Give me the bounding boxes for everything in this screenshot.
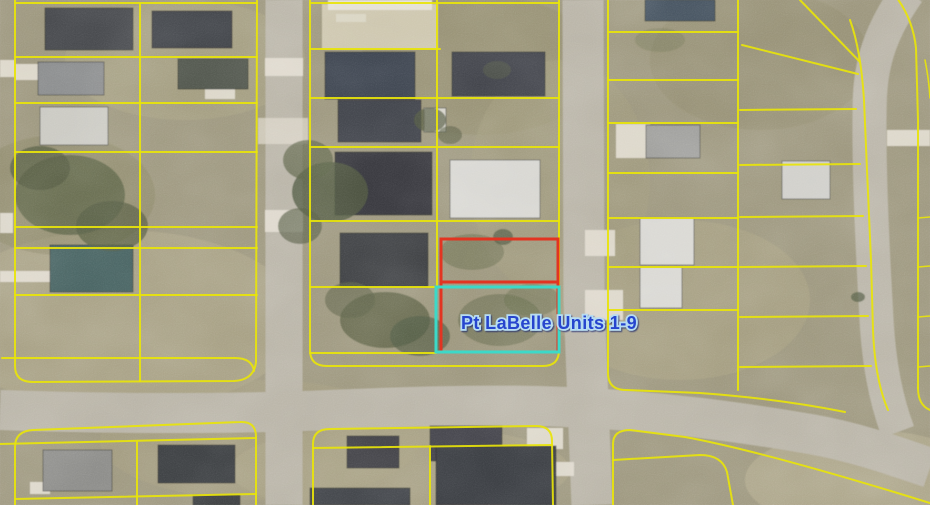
parcel-boundary-line <box>918 217 930 218</box>
subdivision-label: Pt LaBelle Units 1-9 <box>461 313 637 333</box>
aerial-map-view[interactable]: Pt LaBelle Units 1-9 <box>0 0 930 505</box>
parcel-boundary-line <box>740 366 871 367</box>
parcel-boundary-line <box>918 366 930 367</box>
parcel-boundary-line <box>740 216 863 217</box>
parcel-boundary-line <box>918 266 930 267</box>
parcel-boundary-line <box>740 109 856 110</box>
parcel-boundary-line <box>918 316 930 317</box>
parcel-boundary-line <box>740 164 860 165</box>
parcel-boundary-line <box>740 266 866 267</box>
parcel-boundary-line <box>740 316 868 317</box>
map-canvas[interactable]: Pt LaBelle Units 1-9 <box>0 0 930 505</box>
